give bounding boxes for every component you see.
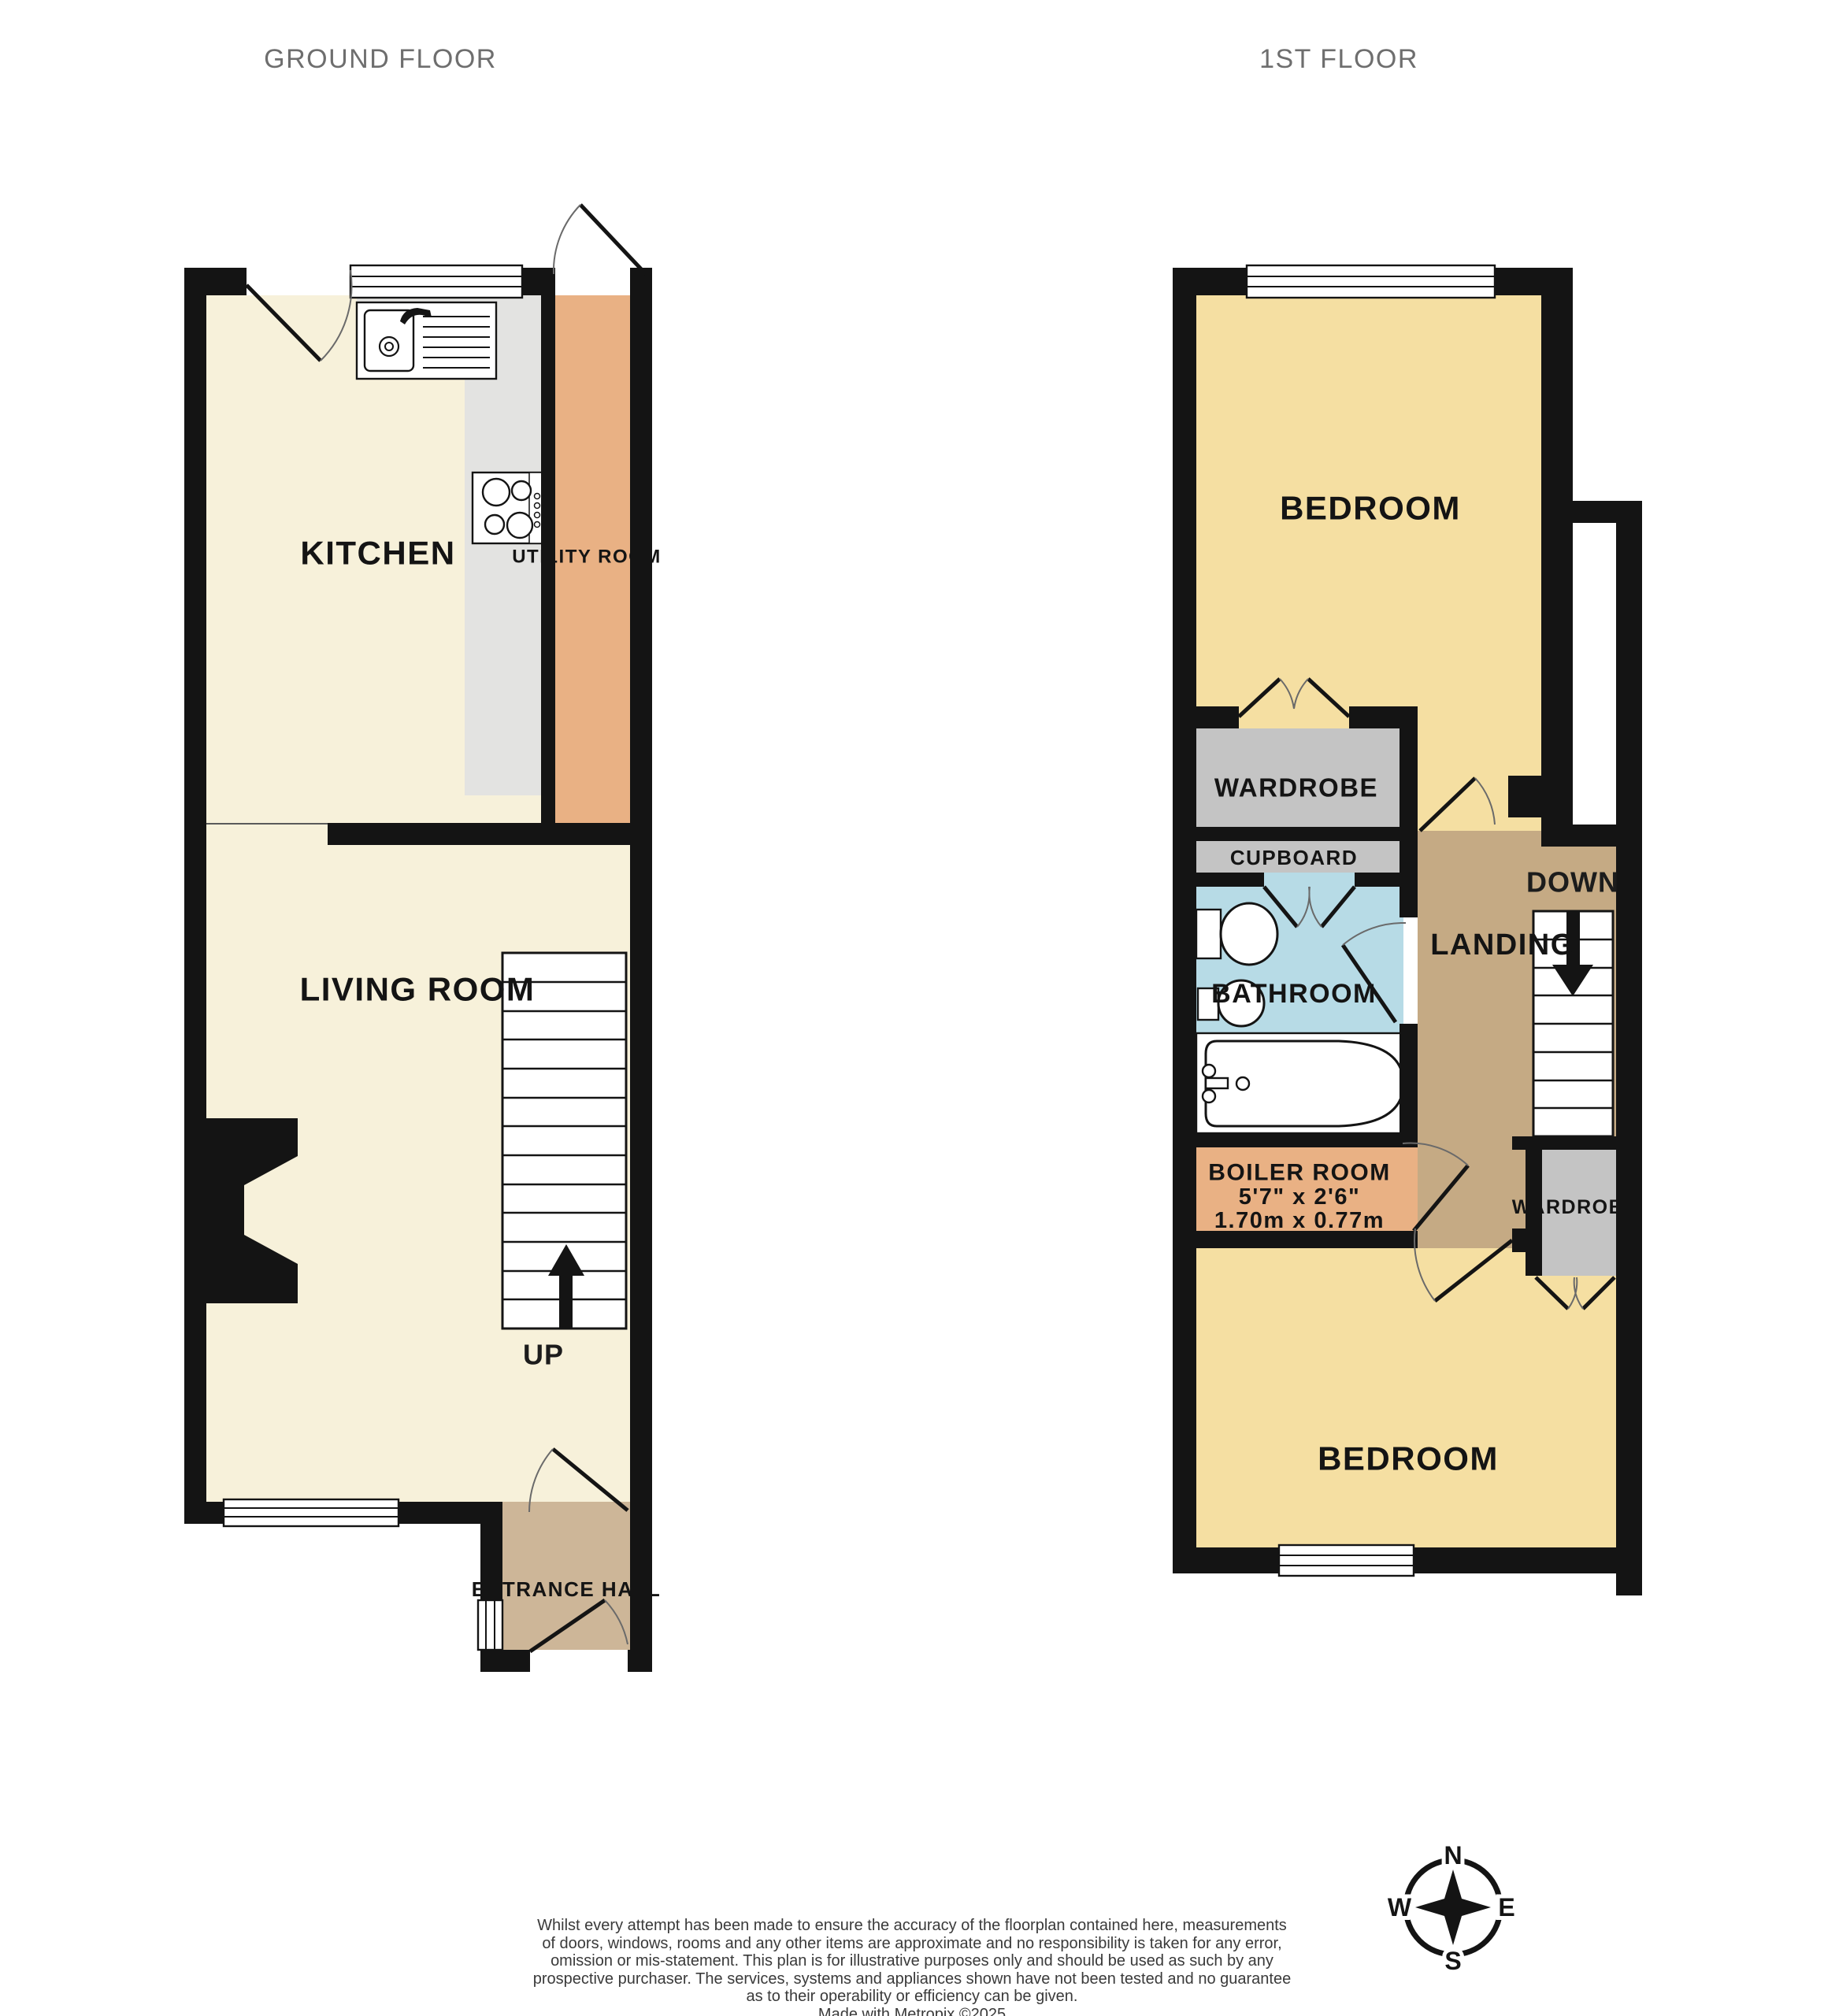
ff-wardrobe-back-left-wall	[1526, 1150, 1542, 1276]
gf-right-wall	[630, 268, 652, 1672]
utility-exterior-door	[554, 205, 646, 274]
gf-utility-wall	[541, 295, 555, 823]
stairs-up	[502, 953, 626, 1329]
ff-column-upper-wall	[1400, 706, 1418, 917]
ff-cupboard-top-wall	[1196, 827, 1400, 841]
ff-column-lower-wall	[1400, 1024, 1418, 1133]
bedroom-front-window	[1247, 265, 1495, 298]
disclaimer-text: Whilst every attempt has been made to en…	[282, 1917, 1542, 2016]
boiler-room-size-metric: 1.70m x 0.77m	[1214, 1208, 1385, 1233]
gf-left-wall	[184, 268, 206, 1524]
ff-landing-pier-wall	[1508, 776, 1541, 817]
kitchen-label: KITCHEN	[300, 535, 455, 572]
floorplan-page: GROUND FLOOR 1ST FLOOR	[0, 0, 1824, 2016]
bedroom-back-window	[1279, 1545, 1414, 1576]
disclaimer-line: of doors, windows, rooms and any other i…	[282, 1935, 1542, 1953]
kitchen-window	[350, 265, 522, 298]
kitchen-counter-side	[465, 379, 541, 795]
disclaimer-line: omission or mis-statement. This plan is …	[282, 1952, 1542, 1970]
entrance-hall-window	[478, 1600, 502, 1650]
bedroom-front-label: BEDROOM	[1280, 490, 1461, 527]
ff-left-wall	[1173, 268, 1196, 1573]
front-door-opening	[530, 1650, 628, 1672]
wardrobe-front-opening	[1239, 706, 1349, 728]
compass-north-label: N	[1444, 1841, 1462, 1870]
gf-hall-post-wall	[480, 1524, 502, 1600]
wardrobe-front-label: WARDROBE	[1214, 773, 1378, 802]
living-room-window	[224, 1499, 399, 1526]
ff-bedroom-door-post-wall	[1512, 1228, 1542, 1252]
kitchen-door-opening	[247, 268, 350, 295]
bathroom-label: BATHROOM	[1211, 979, 1377, 1009]
landing-label: LANDING	[1430, 928, 1575, 962]
floorplan-drawing: UTILITY ROOM ENTRANCE HALL WARDROBE	[0, 0, 1824, 2016]
gf-kitchen-divider-wall	[328, 823, 652, 845]
bedroom-back-label: BEDROOM	[1318, 1440, 1499, 1477]
ff-step-bottom-wall	[1573, 825, 1616, 847]
kitchen-hob-icon	[473, 472, 546, 543]
down-label: DOWN	[1526, 866, 1619, 899]
living-room-label: LIVING ROOM	[300, 971, 536, 1008]
disclaimer-line: prospective purchaser. The services, sys…	[282, 1970, 1542, 1988]
bath-icon	[1196, 1033, 1407, 1133]
kitchen-sink-icon	[357, 302, 496, 379]
disclaimer-line: Whilst every attempt has been made to en…	[282, 1917, 1542, 1935]
chimney-breast	[206, 1118, 298, 1303]
ff-right-upper-wall	[1541, 268, 1573, 847]
toilet-icon	[1196, 903, 1277, 965]
metropix-credit: Made with Metropix ©2025	[282, 2006, 1542, 2016]
boiler-room-size-imperial: 5'7" x 2'6"	[1239, 1184, 1361, 1210]
cupboard-opening	[1264, 873, 1355, 887]
utility-door-opening	[555, 268, 630, 295]
ff-bathroom-bottom-wall	[1196, 1133, 1418, 1147]
boiler-room-label: BOILER ROOM	[1208, 1160, 1391, 1186]
ff-boiler-bottom-wall	[1196, 1231, 1418, 1248]
ff-right-lower-wall	[1616, 501, 1642, 1595]
ff-wardrobe-back-top-wall	[1512, 1136, 1616, 1150]
up-label: UP	[523, 1339, 564, 1371]
disclaimer-line: as to their operability or efficiency ca…	[282, 1988, 1542, 2006]
cupboard-label: CUPBOARD	[1230, 846, 1358, 869]
